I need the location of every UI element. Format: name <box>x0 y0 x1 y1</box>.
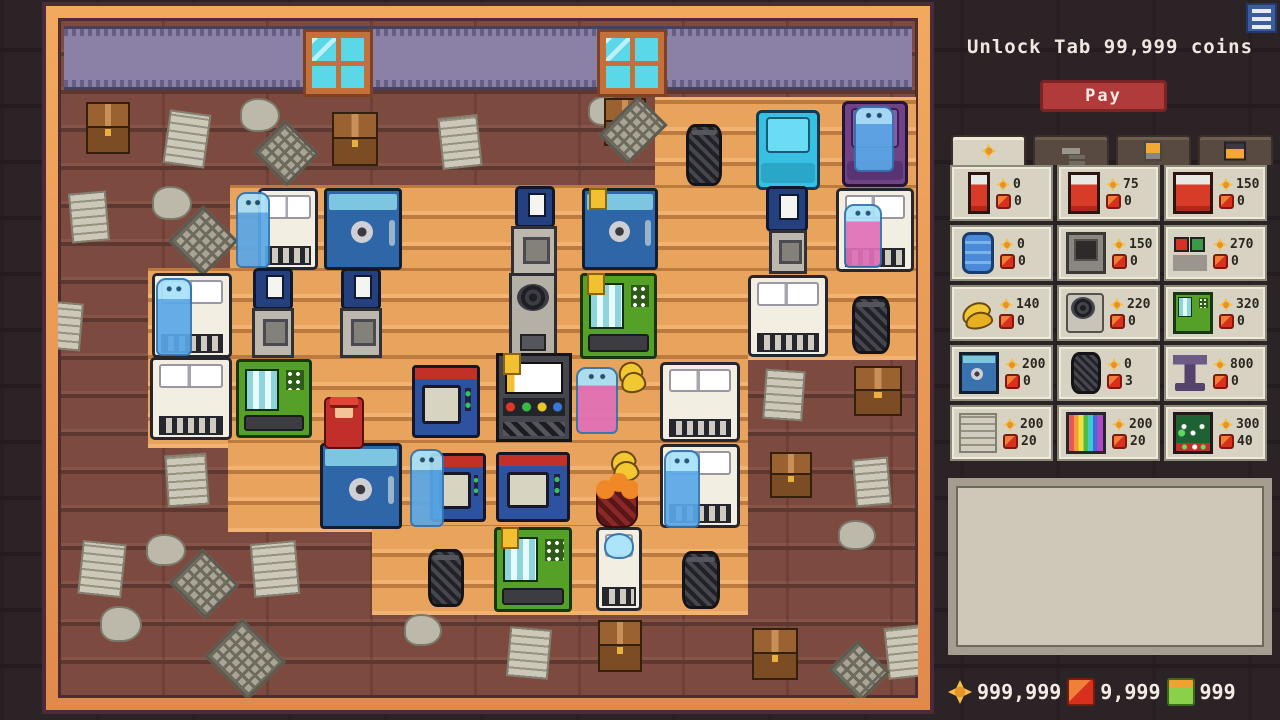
gem-price: 0 <box>1017 313 1025 330</box>
shop-item-newspaper[interactable]: 20020 <box>950 405 1053 461</box>
shop-item-tv[interactable]: 20020 <box>1057 405 1160 461</box>
shop-item-single-bed[interactable]: 00 <box>950 165 1053 221</box>
armchair-cyan[interactable] <box>756 110 820 190</box>
price-tag <box>589 188 607 210</box>
shop-item-double-bed[interactable]: 750 <box>1057 165 1160 221</box>
trash-can[interactable] <box>852 296 890 354</box>
vending-machine-icon <box>1173 292 1213 334</box>
coin-price: 220 <box>1127 296 1150 313</box>
single-bed-icon <box>968 172 990 214</box>
ghost-woman-purple[interactable] <box>576 367 618 434</box>
crate <box>854 366 902 416</box>
ruby-icon <box>1112 434 1127 449</box>
ruby-icon <box>999 314 1014 329</box>
gem-price: 0 <box>1128 313 1136 330</box>
gem-price: 0 <box>1130 253 1138 270</box>
coin-price: 200 <box>1022 356 1045 373</box>
ghost-woman-pink[interactable] <box>844 204 882 268</box>
gem-price: 0 <box>1231 373 1239 390</box>
shop-item-queen-bed[interactable]: 1500 <box>1164 165 1267 221</box>
shop-item-safe[interactable]: 2000 <box>950 345 1053 401</box>
trash-can-icon <box>1071 352 1101 394</box>
coin-price: 0 <box>1124 356 1132 373</box>
currency-bar: 999,9999,999999 <box>948 678 1276 706</box>
coins-value: 999,999 <box>977 680 1061 704</box>
game-board <box>42 2 934 714</box>
grate <box>828 640 890 698</box>
ruby-icon <box>1219 194 1234 209</box>
paper <box>852 457 892 508</box>
ruby-icon <box>1005 374 1020 389</box>
trash-can[interactable] <box>428 549 464 607</box>
coin-price: 75 <box>1123 176 1139 193</box>
tv-set[interactable] <box>412 365 480 438</box>
gem-price: 20 <box>1021 433 1037 450</box>
crumple <box>146 534 186 566</box>
safe-blue[interactable] <box>324 188 402 270</box>
ruby-icon <box>1107 374 1122 389</box>
currency-gems: 999 <box>1167 678 1236 706</box>
paper <box>506 626 552 679</box>
ruby-icon <box>1112 254 1127 269</box>
coin-price: 200 <box>1129 416 1152 433</box>
coin-price: 0 <box>1013 176 1021 193</box>
coin-price: 150 <box>1236 176 1259 193</box>
ghost-on-armchair[interactable] <box>854 106 894 172</box>
shop-grid: 0075015000015002700140022003200200003800… <box>950 165 1272 461</box>
gem-price: 0 <box>1018 253 1026 270</box>
tools-tab[interactable] <box>1033 135 1108 165</box>
trash-can[interactable] <box>686 124 722 186</box>
coin-price: 0 <box>1017 236 1025 253</box>
crate <box>770 452 812 498</box>
grey-machine[interactable] <box>511 226 557 276</box>
gems-icon <box>1167 678 1195 706</box>
unlock-tab-label: Unlock Tab 99,999 coins <box>942 36 1278 58</box>
coin-price: 800 <box>1230 356 1253 373</box>
upper-wall-band <box>64 26 912 90</box>
coin-price: 150 <box>1129 236 1152 253</box>
coin-icon <box>1213 238 1227 252</box>
shop-item-game-console[interactable]: 2700 <box>1164 225 1267 281</box>
rubies-icon <box>1067 678 1095 706</box>
gem-price: 0 <box>1023 373 1031 390</box>
pool-table-icon <box>1173 412 1213 454</box>
game-console-icon <box>1173 235 1207 271</box>
paper <box>77 540 126 598</box>
ruby-icon <box>1110 314 1125 329</box>
safe-blue-tagged[interactable] <box>582 188 658 270</box>
grey-machine[interactable] <box>340 308 382 358</box>
gem-price: 0 <box>1237 193 1245 210</box>
crate <box>598 620 642 672</box>
currency-rubies: 9,999 <box>1067 678 1160 706</box>
ghost-waving[interactable] <box>236 192 270 268</box>
coin-price: 200 <box>1020 416 1043 433</box>
ghost-standing[interactable] <box>664 450 700 528</box>
tv-icon <box>1066 412 1106 454</box>
shop-item-pool-table[interactable]: 30040 <box>1164 405 1267 461</box>
paper <box>68 190 110 243</box>
coin-icon <box>1000 238 1014 252</box>
crumple <box>100 606 142 642</box>
ruby-icon <box>1000 254 1015 269</box>
gem-price: 0 <box>1231 253 1239 270</box>
coin-icon <box>1112 418 1126 432</box>
pedestal-icon <box>1173 355 1207 391</box>
shop-item-bananas[interactable]: 1400 <box>950 285 1053 341</box>
tv-set[interactable] <box>496 452 570 522</box>
rubies-value: 9,999 <box>1100 680 1160 704</box>
vending-machine[interactable] <box>236 359 312 438</box>
chest-icon <box>1224 142 1246 161</box>
mattress-stack-icon <box>962 232 994 274</box>
ruby-icon <box>1219 314 1234 329</box>
chest-tab[interactable] <box>1198 135 1273 165</box>
shop-item-pedestal[interactable]: 8000 <box>1164 345 1267 401</box>
coin-icon <box>1219 298 1233 312</box>
crate <box>752 628 798 680</box>
coin-icon <box>1110 298 1124 312</box>
coin-icon <box>1112 238 1126 252</box>
bed-double[interactable] <box>660 362 740 442</box>
orange-basket[interactable] <box>596 488 638 528</box>
bed-double[interactable] <box>748 275 828 357</box>
room-wall <box>58 18 918 698</box>
shop-item-trash-can[interactable]: 03 <box>1057 345 1160 401</box>
coin-icon <box>1213 358 1227 372</box>
arcade-machine[interactable] <box>496 353 572 442</box>
fan-machine-icon <box>1066 293 1104 333</box>
coin-icon <box>1005 358 1019 372</box>
price-tag <box>503 353 521 375</box>
crumple <box>152 186 192 220</box>
newspaper-icon <box>959 413 997 453</box>
gems-value: 999 <box>1200 680 1236 704</box>
drinks-tab[interactable] <box>1116 135 1191 165</box>
gem-price: 0 <box>1014 193 1022 210</box>
shop-item-vending-machine[interactable]: 3200 <box>1164 285 1267 341</box>
pay-button[interactable]: Pay <box>1040 80 1167 112</box>
crumple <box>404 614 442 646</box>
window <box>600 32 664 94</box>
gem-price: 3 <box>1125 373 1133 390</box>
crumple <box>838 520 876 550</box>
cup-icon <box>1144 141 1162 161</box>
slot-machine[interactable] <box>341 268 381 310</box>
coin-icon <box>1106 178 1120 192</box>
paper <box>164 453 210 508</box>
ghost-sleeping[interactable] <box>604 533 634 559</box>
coin-icon <box>1219 418 1233 432</box>
ghost-standing[interactable] <box>156 278 192 356</box>
shop-item-fan-machine[interactable]: 2200 <box>1057 285 1160 341</box>
shop-item-furnace[interactable]: 1500 <box>1057 225 1160 281</box>
slot-machine[interactable] <box>766 186 808 232</box>
window <box>306 32 370 94</box>
menu-icon[interactable] <box>1246 3 1277 33</box>
price-tag <box>501 527 519 549</box>
shop-item-mattress-stack[interactable]: 00 <box>950 225 1053 281</box>
shop-tabs <box>951 135 1273 165</box>
description-box <box>948 478 1272 655</box>
coin-icon <box>999 298 1013 312</box>
gem-price: 0 <box>1124 193 1132 210</box>
bananas-icon <box>959 295 993 331</box>
coin-icon <box>996 178 1010 192</box>
coins-icon <box>948 680 972 704</box>
grey-machine[interactable] <box>252 308 294 358</box>
hammer-icon <box>1062 148 1080 154</box>
ruby-icon <box>1213 254 1228 269</box>
ruby-icon <box>996 194 1011 209</box>
paper <box>58 301 84 352</box>
coin-price: 140 <box>1016 296 1039 313</box>
slot-machine[interactable] <box>515 186 555 228</box>
slot-machine[interactable] <box>253 268 293 310</box>
trash-can[interactable] <box>682 551 720 609</box>
furnace-icon <box>1066 232 1106 274</box>
fan-machine[interactable] <box>509 273 557 359</box>
paper <box>162 109 211 168</box>
ruby-icon <box>1219 434 1234 449</box>
crate <box>86 102 130 154</box>
vending-machine[interactable] <box>494 527 572 612</box>
gem-price: 0 <box>1237 313 1245 330</box>
currency-coins: 999,999 <box>948 680 1061 704</box>
ruby-icon <box>1003 434 1018 449</box>
coins-tab[interactable] <box>951 135 1026 165</box>
gem-price: 40 <box>1237 433 1253 450</box>
paper <box>250 540 301 598</box>
player-bellhop[interactable] <box>324 397 364 449</box>
bananas[interactable] <box>616 357 644 395</box>
price-tag <box>587 273 605 295</box>
grate <box>204 618 286 698</box>
bed-double[interactable] <box>150 357 232 440</box>
gem-price: 20 <box>1130 433 1146 450</box>
safe-icon <box>959 352 999 394</box>
safe-blue[interactable] <box>320 443 402 529</box>
coin-icon <box>1107 358 1121 372</box>
vending-machine[interactable] <box>580 273 657 359</box>
grey-machine[interactable] <box>769 230 807 274</box>
double-bed-icon <box>1068 172 1100 214</box>
coin-price: 300 <box>1236 416 1259 433</box>
ruby-icon <box>1213 374 1228 389</box>
ruby-icon <box>1106 194 1121 209</box>
coin-icon <box>1219 178 1233 192</box>
crate <box>332 112 378 166</box>
ghost-standing[interactable] <box>410 449 444 527</box>
crumple <box>240 98 280 132</box>
queen-bed-icon <box>1173 172 1213 214</box>
coin-icon <box>1003 418 1017 432</box>
coin-price: 320 <box>1236 296 1259 313</box>
coin-icon <box>981 143 997 159</box>
coin-price: 270 <box>1230 236 1253 253</box>
paper <box>437 114 482 170</box>
paper <box>762 369 805 422</box>
